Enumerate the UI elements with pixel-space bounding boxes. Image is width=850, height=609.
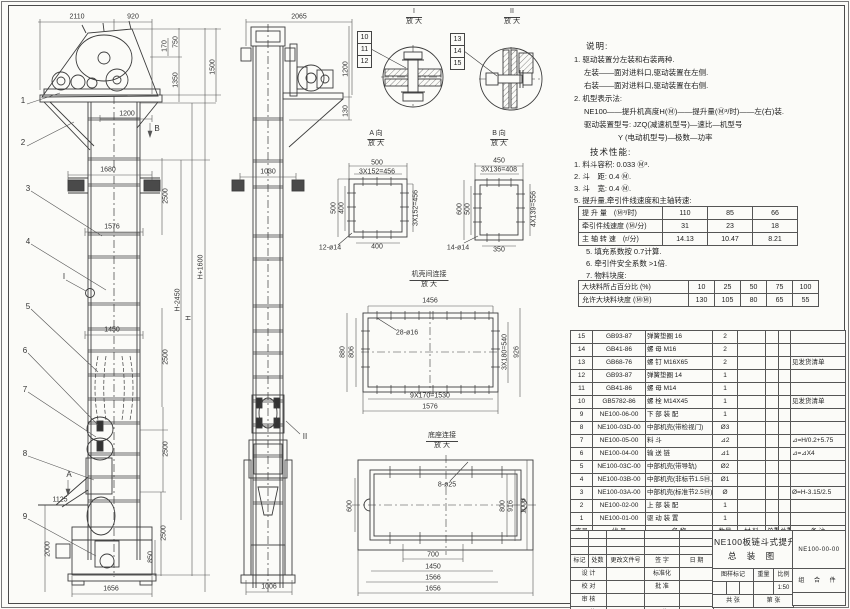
lump-pct-value: 50 xyxy=(741,281,767,294)
bom-name: 螺 栓 M14X45 xyxy=(646,396,713,409)
dim-fv-2500d: 2500 xyxy=(161,525,168,541)
detail-II-label: II xyxy=(504,8,520,18)
dim-bj-600: 600 xyxy=(347,500,354,512)
bill-of-materials: 15 GB93-87 弹簧垫圈 16 2 14 GB41-86 螺 母 M16 … xyxy=(570,330,846,539)
dim-fv-2110: 2110 xyxy=(69,14,84,21)
stamp-scale-value: 1:50 xyxy=(774,582,794,595)
bom-total-weight xyxy=(779,370,791,383)
bom-material xyxy=(738,435,766,448)
dim-cj-1530: 9X170=1530 xyxy=(410,393,450,400)
bom-row: 11 GB41-86 螺 母 M14 1 xyxy=(571,383,846,396)
dim-fv-2500b: 2500 xyxy=(163,349,170,365)
dim-bj-hole: 8-ø25 xyxy=(438,482,456,489)
view-B-dimension-lines xyxy=(464,163,530,246)
dim-fv-1500: 1500 xyxy=(210,59,217,75)
bom-item-no: 1 xyxy=(571,513,593,526)
dim-fv-920: 920 xyxy=(127,14,139,21)
role-cell xyxy=(607,568,645,581)
side-view xyxy=(232,24,343,592)
bom-row: 5 NE100-03C-00 中部机壳(带导轨) Ø2 xyxy=(571,461,846,474)
bom-material xyxy=(738,383,766,396)
note-line: 2. 机型表示法: xyxy=(574,95,622,103)
dim-sv-1200: 1200 xyxy=(343,61,350,77)
dim-bj-800: 800 xyxy=(500,500,507,512)
stamp-weight-label: 重量 xyxy=(754,569,774,582)
sheet-page: 第 张 xyxy=(754,595,794,608)
balloon-group-13-15: 13 14 15 xyxy=(450,33,465,70)
bom-qty: 2 xyxy=(713,357,738,370)
bom-remark xyxy=(791,513,846,526)
note-line: NE100——提升机高度H(Ⓜ)——提升量(Ⓜ³/时)——左(右)装. xyxy=(584,108,784,116)
bom-material xyxy=(738,474,766,487)
dim-fv-1350: 1350 xyxy=(173,72,180,88)
dim-fv-2500c: 2500 xyxy=(163,441,170,457)
dim-fv-1450: 1450 xyxy=(104,327,120,334)
bom-total-weight xyxy=(779,409,791,422)
balloon-1: 1 xyxy=(21,97,25,105)
detail-II-mag: 放 大 xyxy=(504,18,520,25)
bom-item-no: 2 xyxy=(571,500,593,513)
bom-name: 输 送 链 xyxy=(646,448,713,461)
bom-total-weight xyxy=(779,448,791,461)
lump-pct-value: 10 xyxy=(689,281,715,294)
bom-name: 上 部 装 配 xyxy=(646,500,713,513)
bom-material xyxy=(738,422,766,435)
bom-code: NE100-01-00 xyxy=(593,513,646,526)
marker-b: B xyxy=(154,125,159,133)
bom-code: GB5782-86 xyxy=(593,396,646,409)
capacity-value: 66 xyxy=(753,207,798,220)
detail-II-caption: II 放 大 xyxy=(504,8,520,27)
capacity-table: 提 升 量 (Ⓜ³/时) 110 85 66 牵引件线速度 (Ⓜ/分) 31 2… xyxy=(578,206,798,246)
shaft-speed-value: 8.21 xyxy=(753,233,798,246)
bom-item-no: 10 xyxy=(571,396,593,409)
bom-code: GB93-87 xyxy=(593,331,646,344)
tech-item: 5. 填充系数按 0.7计算. xyxy=(586,248,661,256)
shaft-speed-value: 14.13 xyxy=(663,233,708,246)
balloon-4: 4 xyxy=(26,238,30,246)
dim-cj-540: 3X180=540 xyxy=(502,334,509,370)
rev-cell xyxy=(589,547,607,555)
dim-va-456r: 3X152=456 xyxy=(413,190,420,226)
dim-fv-1680: 1680 xyxy=(100,167,116,174)
bom-name: 中部机壳(标准节2.5Ⓜ) xyxy=(646,487,713,500)
dim-vb-408: 3X136=408 xyxy=(481,167,517,174)
dim-fv-1125: 1125 xyxy=(52,497,67,504)
bom-name: 驱 动 装 置 xyxy=(646,513,713,526)
drawing-title: NE100板链斗式提升机 总 装 图 xyxy=(713,531,794,569)
casing-joint-label: 机壳间连接 xyxy=(410,271,449,281)
bom-material xyxy=(738,500,766,513)
role-cell xyxy=(645,594,680,607)
dim-va-hole: 12-ø14 xyxy=(319,245,341,252)
dim-fv-2000: 2000 xyxy=(45,541,52,557)
chain-speed-value: 18 xyxy=(753,220,798,233)
balloon-9: 9 xyxy=(23,513,27,521)
bom-total-weight xyxy=(779,500,791,513)
dim-bj-916: 916 xyxy=(508,500,515,512)
bom-item-no: 5 xyxy=(571,461,593,474)
dim-va-456t: 3X152=456 xyxy=(359,169,395,176)
view-A-label: A 向 xyxy=(367,130,384,140)
dim-cj-926: 926 xyxy=(514,346,521,358)
rev-cell xyxy=(571,531,589,539)
bom-name: 螺 母 M14 xyxy=(646,383,713,396)
lump-size-value: 105 xyxy=(715,294,741,307)
bom-row: 13 GB68-76 螺 钉 M16X65 2 见发货清单 xyxy=(571,357,846,370)
bom-unit-weight xyxy=(766,383,779,396)
dim-sv-1006: 1006 xyxy=(261,584,277,591)
dim-vb-hole: 14-ø14 xyxy=(447,245,469,252)
bom-total-weight xyxy=(779,461,791,474)
table-row: 主 轴 转 速 (r/分) 14.13 10.47 8.21 xyxy=(579,233,798,246)
bom-code: NE100-02-00 xyxy=(593,500,646,513)
bom-row: 6 NE100-04-00 输 送 链 ⊿1 ⊿=⊿X4 xyxy=(571,448,846,461)
marker-ii: II xyxy=(303,433,307,441)
balloon-15: 15 xyxy=(450,58,465,70)
dim-fv-850: 850 xyxy=(148,551,155,563)
bom-material xyxy=(738,487,766,500)
bom-name: 料 斗 xyxy=(646,435,713,448)
notes-title: 说明: xyxy=(586,42,608,51)
bom-qty: ⊿2 xyxy=(713,435,738,448)
bom-name: 中部机壳(带检视门) xyxy=(646,422,713,435)
base-joint-mag: 放 大 xyxy=(434,442,450,449)
bom-item-no: 7 xyxy=(571,435,593,448)
bom-total-weight xyxy=(779,383,791,396)
view-A-caption: A 向 放 大 xyxy=(367,130,384,149)
bom-row: 7 NE100-05-00 料 斗 ⊿2 ⊿=H/0.2+5.75 xyxy=(571,435,846,448)
lump-size-table: 大块料所占百分比 (%) 10 25 50 75 100 允许大块料块度 (ⓂⓂ… xyxy=(578,280,819,307)
table-row: 牵引件线速度 (Ⓜ/分) 31 23 18 xyxy=(579,220,798,233)
balloon-13: 13 xyxy=(450,33,465,46)
bom-material xyxy=(738,461,766,474)
bom-row: 12 GB93-87 弹簧垫圈 14 1 xyxy=(571,370,846,383)
dim-bj-1656: 1656 xyxy=(425,586,441,593)
rev-cell xyxy=(589,531,607,539)
bom-row: 14 GB41-86 螺 母 M16 2 xyxy=(571,344,846,357)
bom-remark xyxy=(791,422,846,435)
revision-block: 标记 处数 更改文件号 签 字 日 期 设 计 标准化 校 对 批 准 审 核 … xyxy=(570,530,714,609)
rev-header-sign: 签 字 xyxy=(645,555,680,568)
casing-joint-mag: 放 大 xyxy=(421,281,437,288)
dim-vb-450: 450 xyxy=(493,158,505,165)
rev-header-doc: 更改文件号 xyxy=(607,555,645,568)
bom-remark xyxy=(791,370,846,383)
tech-title: 技术性能: xyxy=(590,148,631,157)
rev-cell xyxy=(571,547,589,555)
bom-total-weight xyxy=(779,396,791,409)
bom-row: 9 NE100-06-00 下 部 装 配 1 xyxy=(571,409,846,422)
rev-cell xyxy=(680,539,714,547)
dim-bj-1566: 1566 xyxy=(425,575,441,582)
bom-name: 螺 钉 M16X65 xyxy=(646,357,713,370)
lump-size-value: 80 xyxy=(741,294,767,307)
balloon-14: 14 xyxy=(450,46,465,58)
bom-code: GB41-86 xyxy=(593,344,646,357)
bom-row: 1 NE100-01-00 驱 动 装 置 1 xyxy=(571,513,846,526)
engineering-drawing-sheet: 2110 920 170 750 1350 1500 1200 B 1680 2… xyxy=(0,0,850,609)
stamp-mark-label: 图样标记 xyxy=(713,569,754,582)
bom-code: GB68-76 xyxy=(593,357,646,370)
bom-item-no: 6 xyxy=(571,448,593,461)
bom-material xyxy=(738,331,766,344)
bom-row: 15 GB93-87 弹簧垫圈 16 2 xyxy=(571,331,846,344)
capacity-label: 提 升 量 (Ⓜ³/时) xyxy=(579,207,663,220)
bom-remark xyxy=(791,331,846,344)
sheet-total: 共 张 xyxy=(713,595,754,608)
dim-fv-170: 170 xyxy=(162,40,169,52)
part-class: 组 合 件 xyxy=(793,569,846,593)
bom-item-no: 13 xyxy=(571,357,593,370)
lump-pct-label: 大块料所占百分比 (%) xyxy=(579,281,689,294)
shaft-speed-value: 10.47 xyxy=(708,233,753,246)
bom-material xyxy=(738,357,766,370)
elevator-drawing-canvas xyxy=(0,0,565,609)
dim-fv-750: 750 xyxy=(173,36,180,48)
product-name: NE100板链斗式提升机 xyxy=(714,536,792,550)
bom-remark xyxy=(791,474,846,487)
bom-item-no: 3 xyxy=(571,487,593,500)
bom-remark xyxy=(791,461,846,474)
bom-unit-weight xyxy=(766,344,779,357)
base-joint-label: 底座连接 xyxy=(426,432,458,442)
tech-item: 2. 斗 距: 0.4 Ⓜ. xyxy=(574,173,631,181)
rev-cell xyxy=(589,539,607,547)
table-row: 允许大块料块度 (ⓂⓂ) 130 105 80 65 55 xyxy=(579,294,819,307)
bom-remark: 见发货清单 xyxy=(791,357,846,370)
dim-vb-350: 350 xyxy=(493,247,505,254)
detail-I-label: I xyxy=(406,8,422,18)
note-line: 左装——面对进料口,驱动装置在左侧. xyxy=(584,69,708,77)
base-joint-dimension-lines xyxy=(355,460,533,596)
role-standardization: 标准化 xyxy=(645,568,680,581)
dim-cj-1576: 1576 xyxy=(422,404,438,411)
dim-fv-1576: 1576 xyxy=(104,224,120,231)
role-cell xyxy=(607,594,645,607)
balloon-7: 7 xyxy=(23,386,27,394)
role-cell xyxy=(680,581,714,594)
bom-unit-weight xyxy=(766,435,779,448)
dim-bj-1006: 1006 xyxy=(521,498,528,514)
bom-name: 下 部 装 配 xyxy=(646,409,713,422)
chain-speed-label: 牵引件线速度 (Ⓜ/分) xyxy=(579,220,663,233)
marker-i: I xyxy=(63,273,65,281)
lump-pct-value: 25 xyxy=(715,281,741,294)
bom-item-no: 15 xyxy=(571,331,593,344)
bom-material xyxy=(738,513,766,526)
rev-cell xyxy=(607,539,645,547)
detail-I-caption: I 放 大 xyxy=(406,8,422,27)
balloon-3: 3 xyxy=(26,185,30,193)
note-line: 右装——面对进料口,驱动装置在右侧. xyxy=(584,82,708,90)
balloon-2: 2 xyxy=(21,139,25,147)
bom-unit-weight xyxy=(766,487,779,500)
bom-row: 2 NE100-02-00 上 部 装 配 1 xyxy=(571,500,846,513)
role-approve: 批 准 xyxy=(645,581,680,594)
dim-va-400b: 400 xyxy=(371,244,383,251)
stamp-mark-boxes xyxy=(713,582,754,595)
lump-size-label: 允许大块料块度 (ⓂⓂ) xyxy=(579,294,689,307)
view-B xyxy=(464,178,525,243)
rev-cell xyxy=(680,531,714,539)
drawing-number: NE100-00-00 xyxy=(793,531,846,569)
bom-item-no: 4 xyxy=(571,474,593,487)
bom-remark: 见发货清单 xyxy=(791,396,846,409)
balloon-10: 10 xyxy=(357,31,372,44)
rev-cell xyxy=(680,547,714,555)
bom-remark xyxy=(791,500,846,513)
table-row: 大块料所占百分比 (%) 10 25 50 75 100 xyxy=(579,281,819,294)
bom-qty: 1 xyxy=(713,383,738,396)
capacity-value: 85 xyxy=(708,207,753,220)
lump-pct-value: 75 xyxy=(767,281,793,294)
doc-type: 总 装 图 xyxy=(714,550,792,564)
view-A xyxy=(338,177,409,245)
bom-name: 中部机壳(非标节1.5Ⓜ,1Ⓜ) xyxy=(646,474,713,487)
bom-material xyxy=(738,396,766,409)
note-line: 驱动装置型号: JZQ(减速机型号)—速比—机型号 xyxy=(584,121,742,129)
tech-item: 1. 料斗容积: 0.033 Ⓜ³. xyxy=(574,161,649,169)
note-line: Y (电动机型号)—极数—功率 xyxy=(618,134,712,142)
rev-cell xyxy=(645,539,680,547)
tech-item: 3. 斗 宽: 0.4 Ⓜ. xyxy=(574,185,631,193)
bom-qty: Ø xyxy=(713,487,738,500)
dim-sv-130: 130 xyxy=(343,105,350,117)
rev-header-mark: 标记 xyxy=(571,555,589,568)
bom-unit-weight xyxy=(766,409,779,422)
lump-size-value: 55 xyxy=(793,294,819,307)
role-review: 审 核 xyxy=(571,594,607,607)
balloon-8: 8 xyxy=(23,450,27,458)
dim-cj-hole: 28-ø16 xyxy=(396,330,418,337)
bom-remark xyxy=(791,344,846,357)
dim-fv-1656: 1656 xyxy=(103,586,119,593)
bom-qty: 1 xyxy=(713,513,738,526)
bom-code: NE100-03A-00 xyxy=(593,487,646,500)
rev-cell xyxy=(571,539,589,547)
bom-item-no: 11 xyxy=(571,383,593,396)
bom-total-weight xyxy=(779,331,791,344)
bom-unit-weight xyxy=(766,461,779,474)
chain-speed-value: 23 xyxy=(708,220,753,233)
shaft-speed-label: 主 轴 转 速 (r/分) xyxy=(579,233,663,246)
bom-code: NE100-03C-00 xyxy=(593,461,646,474)
bom-row: 10 GB5782-86 螺 栓 M14X45 1 见发货清单 xyxy=(571,396,846,409)
dim-sv-1030: 1030 xyxy=(260,169,276,176)
blank-cell xyxy=(793,593,846,606)
bom-qty: Ø2 xyxy=(713,461,738,474)
bom-total-weight xyxy=(779,344,791,357)
bom-qty: 2 xyxy=(713,331,738,344)
casing-joint-view xyxy=(361,311,500,394)
dim-bj-1450: 1450 xyxy=(425,564,441,571)
bom-qty: 1 xyxy=(713,409,738,422)
bom-item-no: 8 xyxy=(571,422,593,435)
bom-qty: Ø3 xyxy=(713,422,738,435)
dim-fv-2500a: 2500 xyxy=(163,188,170,204)
stamp-scale-label: 比例 xyxy=(774,569,794,582)
bom-item-no: 14 xyxy=(571,344,593,357)
rev-header-date: 日 期 xyxy=(680,555,714,568)
bom-remark: Ø=H-3.15/2.5 xyxy=(791,487,846,500)
bom-qty: 2 xyxy=(713,344,738,357)
rev-cell xyxy=(607,547,645,555)
bom-total-weight xyxy=(779,513,791,526)
table-row: 提 升 量 (Ⓜ³/时) 110 85 66 xyxy=(579,207,798,220)
lump-size-value: 65 xyxy=(767,294,793,307)
bom-unit-weight xyxy=(766,422,779,435)
dim-vb-600: 600 xyxy=(457,203,464,215)
base-joint-caption: 底座连接 放 大 xyxy=(426,432,458,451)
drawing-number-block: NE100-00-00 组 合 件 xyxy=(792,530,846,606)
tech-item: 5. 提升量,牵引件线速度和主轴转速: xyxy=(574,197,692,205)
bom-total-weight xyxy=(779,357,791,370)
bom-name: 螺 母 M16 xyxy=(646,344,713,357)
role-design: 设 计 xyxy=(571,568,607,581)
bom-total-weight xyxy=(779,474,791,487)
dim-fv-h1600: H+1600 xyxy=(198,255,205,280)
dim-vb-556: 4X139=556 xyxy=(531,191,538,227)
role-cell xyxy=(607,581,645,594)
dim-fv-h: H xyxy=(186,315,193,320)
tech-item: 6. 牵引件安全系数 >1倍. xyxy=(586,260,667,268)
role-cell xyxy=(680,594,714,607)
note-line: 1. 驱动装置分左装和右装两种. xyxy=(574,56,674,64)
balloon-6: 6 xyxy=(23,347,27,355)
bom-material xyxy=(738,370,766,383)
bom-total-weight xyxy=(779,422,791,435)
rev-cell xyxy=(645,531,680,539)
dim-sv-2065: 2065 xyxy=(291,14,307,21)
dim-va-500t: 500 xyxy=(371,160,383,167)
dim-fv-1200: 1200 xyxy=(119,111,135,118)
lump-size-value: 130 xyxy=(689,294,715,307)
dim-vb-500: 500 xyxy=(465,203,472,215)
bom-unit-weight xyxy=(766,474,779,487)
detail-I-mag: 放 大 xyxy=(406,18,422,25)
dim-cj-1456: 1456 xyxy=(422,298,438,305)
dim-fv-h2450: H-2450 xyxy=(175,289,182,312)
bom-code: NE100-06-00 xyxy=(593,409,646,422)
bom-code: GB41-86 xyxy=(593,383,646,396)
chain-speed-value: 31 xyxy=(663,220,708,233)
bom-unit-weight xyxy=(766,500,779,513)
bom-qty: 1 xyxy=(713,370,738,383)
bom-qty: 1 xyxy=(713,500,738,513)
bom-qty: 1 xyxy=(713,396,738,409)
bom-name: 中部机壳(带导轨) xyxy=(646,461,713,474)
bom-material xyxy=(738,448,766,461)
rev-header-count: 处数 xyxy=(589,555,607,568)
rev-cell xyxy=(607,531,645,539)
bom-code: GB93-87 xyxy=(593,370,646,383)
bom-code: NE100-03B-00 xyxy=(593,474,646,487)
bom-unit-weight xyxy=(766,396,779,409)
view-B-mag: 放 大 xyxy=(491,140,507,147)
dim-cj-880: 880 xyxy=(340,346,347,358)
bom-rows: 15 GB93-87 弹簧垫圈 16 2 14 GB41-86 螺 母 M16 … xyxy=(571,331,846,526)
lump-pct-value: 100 xyxy=(793,281,819,294)
casing-joint-caption: 机壳间连接 放 大 xyxy=(410,271,449,290)
view-A-mag: 放 大 xyxy=(368,140,384,147)
bom-unit-weight xyxy=(766,513,779,526)
dim-va-400l: 400 xyxy=(339,202,346,214)
bom-name: 弹簧垫圈 14 xyxy=(646,370,713,383)
bom-item-no: 9 xyxy=(571,409,593,422)
bom-unit-weight xyxy=(766,357,779,370)
bom-remark xyxy=(791,383,846,396)
